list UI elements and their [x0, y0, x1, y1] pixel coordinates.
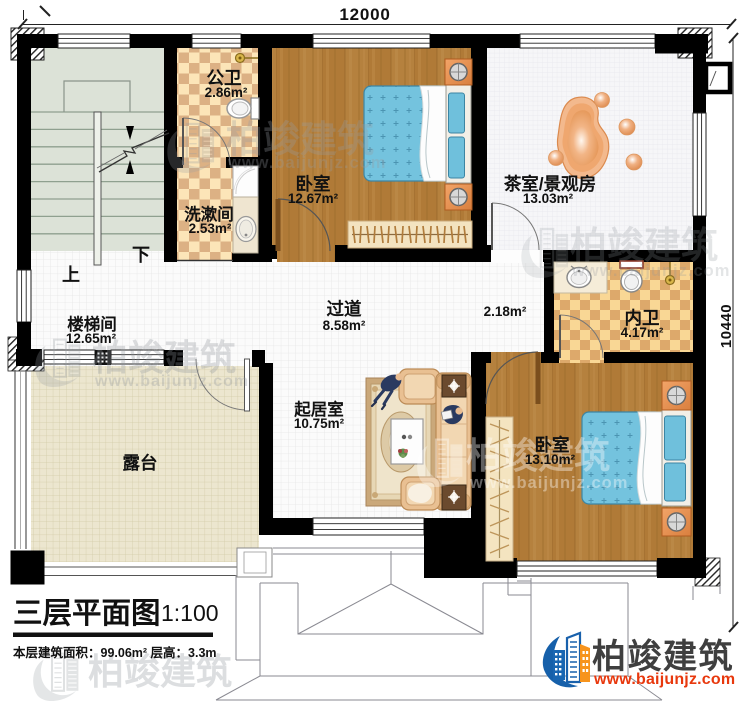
svg-text:13.03m²: 13.03m² [523, 191, 574, 206]
svg-text:下: 下 [132, 245, 150, 265]
svg-text:www.baijunjz.com: www.baijunjz.com [571, 262, 730, 280]
svg-text:www.baijunjz.com: www.baijunjz.com [94, 373, 249, 390]
svg-text:1:100: 1:100 [161, 600, 219, 626]
svg-text:12000: 12000 [339, 5, 390, 24]
svg-text:三层平面图: 三层平面图 [13, 597, 161, 630]
svg-text:上: 上 [62, 265, 80, 285]
svg-text:12.67m²: 12.67m² [288, 191, 339, 206]
svg-text:2.53m²: 2.53m² [189, 221, 232, 236]
svg-text:www.baijunjz.com: www.baijunjz.com [593, 671, 735, 688]
svg-text:2.86m²: 2.86m² [205, 85, 248, 100]
svg-text:2.18m²: 2.18m² [484, 304, 527, 319]
svg-text:本层建筑面积：99.06m² 层高：3.3m: 本层建筑面积：99.06m² 层高：3.3m [13, 645, 217, 660]
svg-text:露台: 露台 [123, 453, 158, 473]
svg-text:4.17m²: 4.17m² [621, 325, 664, 340]
svg-text:柏竣建筑: 柏竣建筑 [570, 224, 718, 266]
svg-text:www.baijunjz.com: www.baijunjz.com [469, 474, 628, 492]
svg-text:10440: 10440 [718, 304, 735, 348]
svg-text:12.65m²: 12.65m² [66, 331, 117, 346]
svg-text:13.10m²: 13.10m² [525, 452, 576, 467]
svg-text:10.75m²: 10.75m² [294, 416, 345, 431]
svg-text:过道: 过道 [327, 299, 362, 319]
svg-text:www.baijunjz.com: www.baijunjz.com [227, 154, 386, 172]
svg-text:8.58m²: 8.58m² [323, 318, 366, 333]
